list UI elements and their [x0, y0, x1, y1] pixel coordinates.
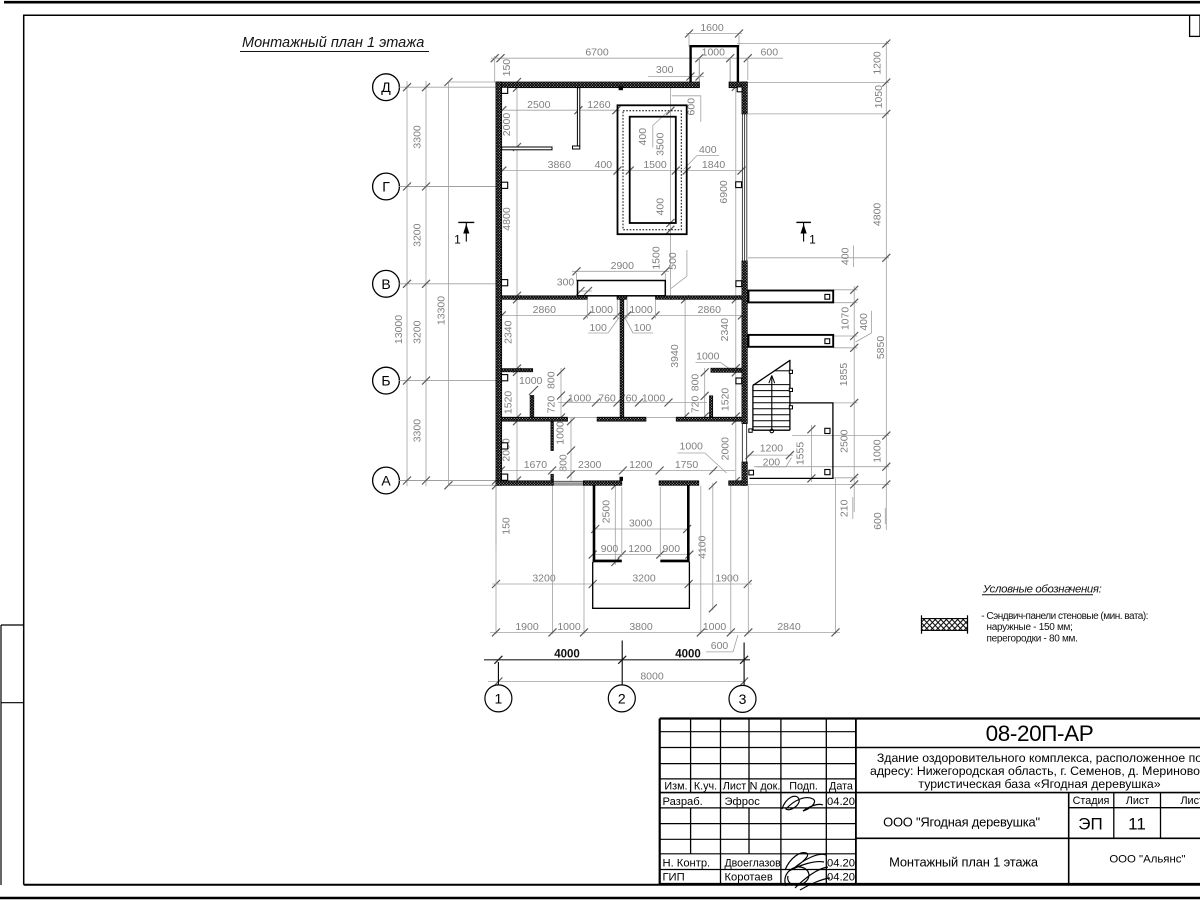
- svg-text:210: 210: [838, 499, 850, 517]
- svg-text:4800: 4800: [501, 207, 513, 231]
- svg-text:наружные - 150 мм;: наружные - 150 мм;: [987, 622, 1073, 633]
- svg-text:Здание оздоровительного компле: Здание оздоровительного комплекса, распо…: [877, 751, 1200, 765]
- svg-text:1000: 1000: [555, 421, 567, 445]
- svg-text:Лист: Лист: [1126, 795, 1150, 807]
- svg-text:К.уч.: К.уч.: [694, 781, 717, 793]
- svg-text:2840: 2840: [777, 621, 801, 633]
- svg-text:2900: 2900: [611, 260, 635, 272]
- svg-text:2000: 2000: [720, 437, 732, 461]
- svg-text:04.20: 04.20: [827, 872, 855, 884]
- svg-text:Д: Д: [381, 79, 391, 95]
- svg-text:Коротаев: Коротаев: [725, 872, 773, 884]
- svg-text:2500: 2500: [527, 99, 551, 111]
- svg-text:500: 500: [667, 252, 679, 270]
- svg-text:6700: 6700: [585, 47, 609, 59]
- svg-text:600: 600: [711, 640, 729, 652]
- svg-text:3860: 3860: [548, 159, 572, 171]
- svg-text:1670: 1670: [524, 459, 548, 471]
- svg-text:08-20П-АР: 08-20П-АР: [986, 721, 1094, 746]
- svg-text:800: 800: [546, 371, 558, 389]
- svg-text:1555: 1555: [794, 442, 806, 466]
- svg-text:4800: 4800: [872, 203, 884, 227]
- svg-text:760: 760: [598, 393, 616, 405]
- svg-text:Лист: Лист: [723, 781, 747, 793]
- svg-text:150: 150: [501, 517, 513, 535]
- svg-text:2860: 2860: [533, 304, 557, 316]
- svg-text:1900: 1900: [715, 573, 739, 585]
- svg-text:04.20: 04.20: [827, 857, 855, 869]
- svg-text:5850: 5850: [875, 336, 887, 360]
- svg-text:2860: 2860: [698, 304, 722, 316]
- svg-text:1000: 1000: [702, 47, 726, 59]
- svg-text:600: 600: [761, 47, 779, 59]
- svg-text:04.20: 04.20: [827, 796, 855, 808]
- svg-text:1200: 1200: [872, 51, 884, 75]
- svg-text:1070: 1070: [840, 307, 852, 331]
- svg-text:800: 800: [557, 454, 569, 472]
- svg-text:1000: 1000: [642, 393, 666, 405]
- svg-text:1000: 1000: [568, 393, 592, 405]
- svg-text:13300: 13300: [435, 296, 447, 325]
- svg-text:1000: 1000: [590, 304, 614, 316]
- svg-text:13000: 13000: [393, 315, 405, 344]
- svg-text:ЭП: ЭП: [1078, 814, 1102, 833]
- svg-text:3940: 3940: [669, 344, 681, 368]
- svg-text:2300: 2300: [578, 459, 602, 471]
- svg-text:400: 400: [840, 247, 852, 265]
- svg-text:720: 720: [690, 395, 702, 413]
- svg-text:1750: 1750: [675, 459, 699, 471]
- svg-text:6900: 6900: [718, 180, 730, 204]
- svg-text:150: 150: [501, 59, 513, 77]
- svg-text:3200: 3200: [632, 573, 656, 585]
- svg-text:1260: 1260: [587, 99, 611, 111]
- svg-text:3200: 3200: [412, 223, 424, 247]
- svg-text:1500: 1500: [643, 159, 667, 171]
- svg-text:3000: 3000: [629, 517, 653, 529]
- svg-text:- Сэндвич-панели стеновые (мин: - Сэндвич-панели стеновые (мин. вата):: [981, 611, 1148, 622]
- svg-text:В: В: [381, 276, 390, 292]
- svg-text:Эфрос: Эфрос: [725, 796, 761, 808]
- svg-text:8000: 8000: [640, 670, 664, 682]
- svg-text:1200: 1200: [629, 459, 653, 471]
- svg-text:1840: 1840: [702, 159, 726, 171]
- svg-text:4100: 4100: [696, 535, 708, 559]
- svg-text:Б: Б: [381, 373, 390, 389]
- svg-text:11: 11: [1128, 814, 1146, 833]
- svg-text:100: 100: [589, 322, 607, 334]
- svg-text:Изм.: Изм.: [664, 781, 687, 793]
- svg-text:1200: 1200: [628, 543, 652, 555]
- svg-text:800: 800: [690, 374, 702, 392]
- svg-text:2500: 2500: [838, 429, 850, 453]
- svg-text:720: 720: [546, 396, 558, 414]
- svg-text:Дата: Дата: [829, 781, 853, 793]
- svg-text:2000: 2000: [501, 113, 513, 137]
- svg-text:2500: 2500: [601, 500, 613, 524]
- svg-text:3300: 3300: [412, 125, 424, 149]
- svg-text:1: 1: [454, 233, 461, 247]
- svg-text:100: 100: [634, 322, 652, 334]
- svg-text:1520: 1520: [720, 388, 732, 412]
- svg-text:1050: 1050: [873, 85, 885, 109]
- svg-text:адресу: Нижегородская область,: адресу: Нижегородская область, г. Семено…: [870, 764, 1200, 778]
- svg-text:Стадия: Стадия: [1073, 795, 1110, 807]
- svg-text:300: 300: [557, 276, 575, 288]
- svg-text:ГИП: ГИП: [663, 872, 685, 884]
- svg-text:1000: 1000: [680, 441, 704, 453]
- svg-text:400: 400: [595, 159, 613, 171]
- svg-text:1500: 1500: [651, 246, 663, 270]
- svg-text:900: 900: [663, 543, 681, 555]
- svg-text:А: А: [381, 473, 391, 489]
- svg-text:4000: 4000: [675, 649, 701, 661]
- svg-text:3200: 3200: [412, 320, 424, 344]
- svg-text:1: 1: [495, 690, 503, 706]
- svg-text:2: 2: [618, 690, 626, 706]
- svg-text:400: 400: [654, 198, 666, 216]
- svg-text:1000: 1000: [703, 621, 727, 633]
- svg-text:ООО "Ягодная деревушка": ООО "Ягодная деревушка": [883, 815, 1040, 830]
- svg-text:Листов: Листов: [1180, 795, 1200, 807]
- svg-text:300: 300: [656, 64, 674, 76]
- svg-text:Н. Контр.: Н. Контр.: [663, 857, 711, 869]
- svg-text:1600: 1600: [700, 22, 724, 34]
- svg-text:ООО "Альянс": ООО "Альянс": [1109, 854, 1185, 866]
- svg-text:3800: 3800: [629, 621, 653, 633]
- svg-text:3500: 3500: [654, 132, 666, 156]
- svg-text:2340: 2340: [503, 320, 515, 344]
- svg-text:1200: 1200: [760, 443, 784, 455]
- svg-text:2000: 2000: [501, 438, 513, 462]
- svg-text:1000: 1000: [629, 304, 653, 316]
- svg-text:Г: Г: [382, 179, 390, 195]
- svg-text:Монтажный план 1 этажа: Монтажный план 1 этажа: [242, 35, 424, 51]
- svg-text:3300: 3300: [412, 419, 424, 443]
- svg-text:N док.: N док.: [750, 781, 781, 793]
- svg-text:900: 900: [601, 543, 619, 555]
- svg-text:400: 400: [637, 128, 649, 146]
- svg-text:1: 1: [809, 233, 816, 247]
- svg-text:Разраб.: Разраб.: [663, 796, 703, 808]
- svg-text:перегородки - 80 мм.: перегородки - 80 мм.: [987, 633, 1078, 644]
- svg-text:1855: 1855: [838, 363, 850, 387]
- svg-text:Монтажный план 1 этажа: Монтажный план 1 этажа: [889, 855, 1039, 870]
- svg-text:1000: 1000: [557, 621, 581, 633]
- svg-text:4000: 4000: [554, 649, 580, 661]
- svg-text:400: 400: [699, 144, 717, 156]
- svg-text:1520: 1520: [503, 391, 515, 415]
- svg-text:Подп.: Подп.: [789, 781, 818, 793]
- svg-text:400: 400: [858, 313, 870, 331]
- svg-text:600: 600: [872, 512, 884, 530]
- svg-text:1000: 1000: [519, 375, 543, 387]
- svg-text:туристическая база «Ягодная де: туристическая база «Ягодная деревушка»: [918, 777, 1160, 791]
- svg-text:3: 3: [739, 691, 747, 707]
- svg-text:1000: 1000: [696, 351, 720, 363]
- svg-text:1900: 1900: [515, 621, 539, 633]
- svg-text:1000: 1000: [872, 439, 884, 463]
- svg-text:Условные обозначения:: Условные обозначения:: [982, 583, 1102, 595]
- svg-text:Двоеглазов: Двоеглазов: [725, 857, 782, 869]
- svg-text:2340: 2340: [719, 318, 731, 342]
